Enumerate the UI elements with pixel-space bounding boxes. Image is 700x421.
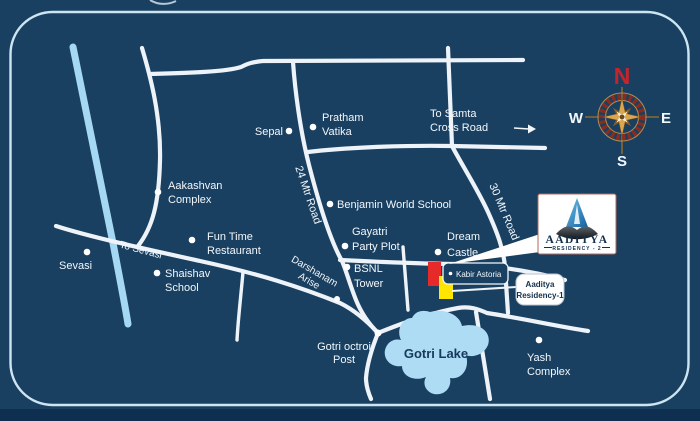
compass-hub	[620, 115, 625, 120]
label-aakashvan-1: Aakashvan	[168, 180, 222, 192]
label-gayatri-2: Party Plot	[352, 241, 400, 253]
label-yash-1: Yash	[527, 352, 551, 364]
label-dream-1: Dream	[447, 231, 480, 243]
label-bsnl-1: BSNL	[354, 263, 383, 275]
dot-benjamin	[327, 201, 334, 208]
label-pratham-2: Vatika	[322, 126, 353, 138]
label-gayatri-1: Gayatri	[352, 226, 387, 238]
bottom-dark-strip	[0, 409, 700, 421]
dot-gotri-junction	[375, 330, 382, 337]
dot-shaishav	[154, 270, 161, 277]
dot-pratham-vatika	[310, 124, 317, 131]
dot-dream-castle	[435, 249, 442, 256]
label-samta-2: Cross Road	[430, 122, 488, 134]
label-aakashvan-2: Complex	[168, 194, 212, 206]
residency1-line2: Residency-1	[516, 291, 564, 300]
dot-sepal	[286, 128, 293, 135]
residency1-line1: Aaditya	[526, 280, 555, 289]
label-bsnl-2: Tower	[354, 278, 384, 290]
location-map: Gotri Lake Sepal Pratham Vatika To Samta…	[0, 0, 700, 421]
dot-fun-time	[189, 237, 196, 244]
dot-aakashvan	[155, 189, 162, 196]
dot-darshanam	[334, 296, 340, 302]
label-sevasi: Sevasi	[59, 260, 92, 272]
label-benjamin: Benjamin World School	[337, 199, 451, 211]
brand-subtitle: RESIDENCY - 2	[552, 246, 601, 252]
compass-north-label: N	[614, 63, 631, 89]
label-gotri-post-2: Post	[333, 354, 355, 366]
label-funtime-2: Restaurant	[207, 245, 261, 257]
label-shaishav-2: School	[165, 282, 199, 294]
dot-bsnl	[344, 264, 351, 271]
dot-yash	[536, 337, 543, 344]
label-shaishav-1: Shaishav	[165, 268, 211, 280]
compass-west-label: W	[569, 110, 584, 127]
residency1-badge: Aaditya Residency-1	[516, 274, 564, 305]
compass-south-label: S	[617, 153, 627, 170]
label-samta-1: To Samta	[430, 108, 477, 120]
dot-sevasi	[84, 249, 91, 256]
dot-gayatri	[342, 243, 349, 250]
label-funtime-1: Fun Time	[207, 231, 253, 243]
lake-label: Gotri Lake	[404, 346, 468, 361]
road-samta-horizontal	[452, 146, 545, 148]
brand-name: AADITYA	[545, 234, 608, 246]
label-sepal: Sepal	[255, 126, 283, 138]
dot-kabir-astoria	[449, 272, 453, 276]
label-gotri-post-1: Gotri octroi	[317, 341, 371, 353]
label-pratham-1: Pratham	[322, 112, 364, 124]
compass-east-label: E	[661, 110, 671, 127]
label-kabir-astoria: Kabir Astoria	[456, 270, 502, 279]
label-yash-2: Complex	[527, 366, 571, 378]
kabir-astoria-tag: Kabir Astoria	[443, 263, 508, 284]
